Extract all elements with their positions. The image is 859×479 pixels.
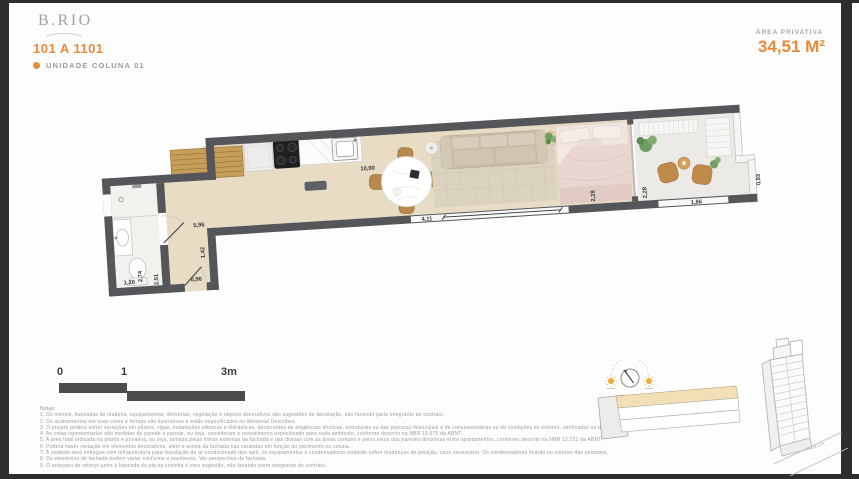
floor-plan: 10,90 5,96 1,42 0,96 1,20 2,74 2,51 4,11… <box>98 86 768 326</box>
dimension-label: 0,96 <box>190 277 202 284</box>
kitchen-bench <box>304 181 327 191</box>
building-sketch: RUA <box>740 326 854 476</box>
balcony-chair <box>691 164 713 186</box>
private-area-value: 34,51 M² <box>758 37 825 57</box>
laptop-icon <box>409 169 419 178</box>
dimension-label: 2,28 <box>590 189 597 201</box>
street-label: RUA <box>812 440 825 450</box>
dimension-label: 1,86 <box>691 199 703 206</box>
unit-code: 101 A 1101 <box>33 41 104 56</box>
dimension-label: 10,90 <box>360 166 375 173</box>
dimension-label: 0,93 <box>756 173 763 185</box>
scale-bar-segment <box>127 391 245 401</box>
unit-row: UNIDADE COLUNA 01 <box>33 61 145 70</box>
note-line: 9. O anteparo de reforço junto à bancada… <box>40 463 850 469</box>
dimension-label: 2,51 <box>154 273 161 285</box>
wall-niche <box>103 194 112 216</box>
brand-logo: B.RIO <box>38 12 93 30</box>
dimension-label: 5,96 <box>193 222 205 229</box>
scale-label: 3m <box>221 366 237 378</box>
sink-basin <box>336 141 354 157</box>
living <box>424 129 562 208</box>
tower <box>762 338 812 456</box>
dimension-label: 2,28 <box>642 186 649 198</box>
wall-entry-stub <box>206 282 218 291</box>
frame-bottom <box>0 474 859 479</box>
cooktop <box>273 139 301 169</box>
pillow <box>593 126 622 139</box>
unit-label: UNIDADE COLUNA 01 <box>46 61 145 70</box>
sofa-armrest <box>440 136 452 170</box>
frame-top <box>0 0 859 3</box>
wall-entry-stub <box>171 284 185 293</box>
shower-head-icon <box>132 184 141 188</box>
dimension-label: 1,42 <box>200 247 207 259</box>
keyplan <box>590 384 744 444</box>
scale-label: 1 <box>121 366 127 378</box>
dimension-label: 2,74 <box>138 270 145 282</box>
dimension-label: 1,20 <box>124 280 136 287</box>
dimension-label: 4,11 <box>421 216 433 223</box>
scale-bar-segment <box>59 383 127 393</box>
scale-label: 0 <box>57 366 63 378</box>
private-area-label: ÁREA PRIVATIVA <box>756 29 823 36</box>
bullet-icon <box>33 62 40 69</box>
logo-flourish <box>44 31 84 39</box>
plate <box>393 189 400 196</box>
frame-left <box>0 0 9 479</box>
floorplan-page: B.RIO 101 A 1101 UNIDADE COLUNA 01 ÁREA … <box>0 0 859 479</box>
